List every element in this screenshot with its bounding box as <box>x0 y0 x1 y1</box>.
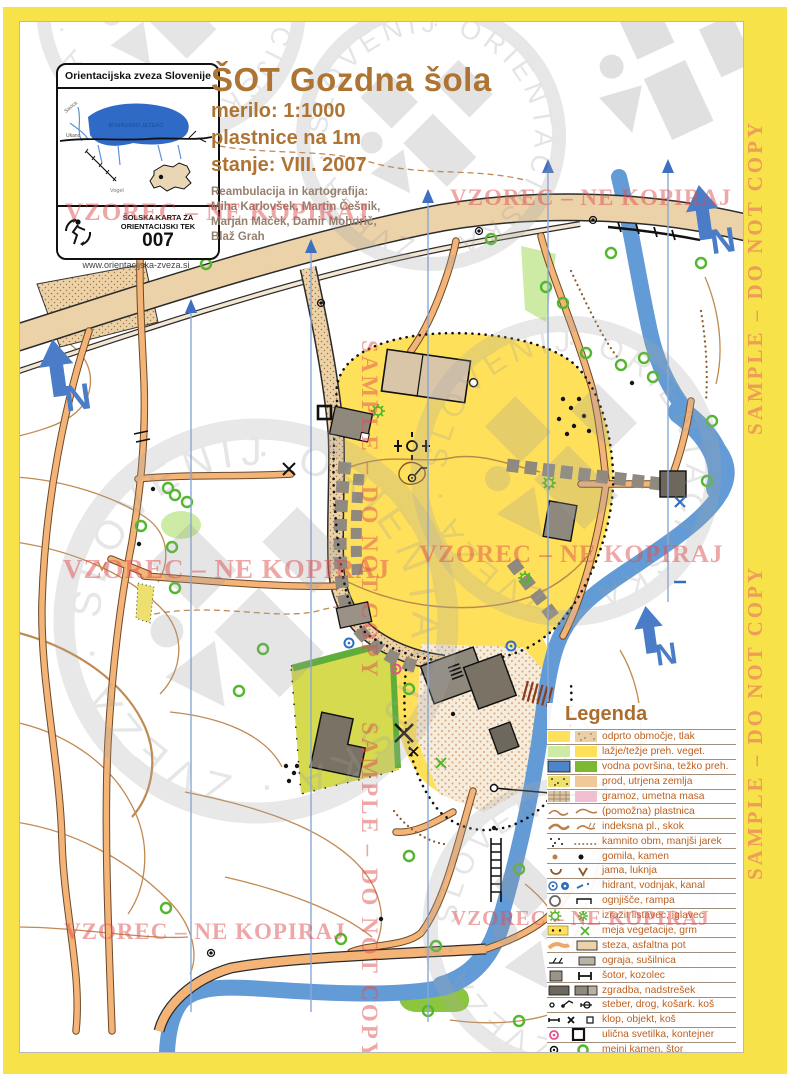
legend-item: šotor, kozolec <box>547 968 736 983</box>
sand-patch <box>136 583 154 623</box>
legend-heading: Legenda <box>565 703 736 726</box>
credits-line: Blaž Grah <box>211 230 492 245</box>
legend-symbol <box>547 745 602 758</box>
website-url: www.orientacijska-zveza.si <box>56 260 216 270</box>
legend-item: kamnito obm, manjši jarek <box>547 834 736 849</box>
legend-symbol <box>547 760 602 773</box>
legend-item: jama, luknja <box>547 864 736 879</box>
map-title: ŠOT Gozdna šola <box>211 62 492 98</box>
logo-footer: ŠOLSKA KARTA ZA ORIENTACIJSKI TEK 007 <box>58 205 218 256</box>
legend-symbol <box>547 1013 602 1026</box>
map-scale: merilo: 1:1000 <box>211 98 492 125</box>
minimap-road <box>188 131 206 142</box>
map-sheet-page: · ORIENTACIJSKA · ZVEZA · SLOVENIJE · OR… <box>0 0 787 1074</box>
ukanc-label: Ukanc <box>66 133 81 139</box>
legend-symbol <box>547 894 602 907</box>
legend-item: ulična svetilka, kontejner <box>547 1028 736 1043</box>
legend-item: mejni kamen, štor <box>547 1043 736 1053</box>
legend-item: steber, drog, košark. koš <box>547 998 736 1013</box>
legend-item: gomila, kamen <box>547 849 736 864</box>
legend-symbol <box>547 984 602 997</box>
legend-symbol <box>547 939 602 952</box>
legend-symbol <box>547 879 602 892</box>
runner-logo-icon <box>58 215 98 249</box>
legend-symbol <box>547 790 602 803</box>
legend-symbol <box>547 730 602 743</box>
legend-item: zgradba, nadstrešek <box>547 983 736 998</box>
legend-item: indeksna pl., skok <box>547 819 736 834</box>
legend-symbol <box>547 820 602 833</box>
map-sheet: · ORIENTACIJSKA · ZVEZA · SLOVENIJE · OR… <box>19 21 744 1053</box>
credits-heading: Reambulacija in kartografija: <box>211 185 492 200</box>
legend: Legenda odprto območje, tlak lažje/težje… <box>547 703 736 1053</box>
legend-item: (pomožna) plastnica <box>547 804 736 819</box>
legend-symbol <box>547 1028 602 1041</box>
legend-item: prod, utrjena zemlja <box>547 775 736 790</box>
club-name: Orientacijska zveza Slovenije <box>58 65 218 89</box>
school-card-line1: ŠOLSKA KARTA ZA <box>98 213 218 222</box>
credits-line: Miha Karlovšek, Martin Češnik, <box>211 200 492 215</box>
legend-symbol <box>547 864 602 877</box>
legend-item: gramoz, umetna masa <box>547 790 736 805</box>
legend-symbol <box>547 909 602 922</box>
slovenia-outline <box>150 163 191 191</box>
legend-symbol <box>547 924 602 937</box>
legend-item: ograja, sušilnica <box>547 953 736 968</box>
legend-symbol <box>547 1043 602 1053</box>
legend-item: izrazit listavec, iglavec <box>547 909 736 924</box>
map-state: stanje: VIII. 2007 <box>211 152 492 179</box>
legend-item: ognjišče, rampa <box>547 894 736 909</box>
credits: Reambulacija in kartografija: Miha Karlo… <box>211 185 492 245</box>
map-number: 007 <box>98 231 218 251</box>
legend-symbol <box>547 969 602 982</box>
legend-symbol <box>547 775 602 788</box>
legend-item: hidrant, vodnjak, kanal <box>547 879 736 894</box>
legend-item: odprto območje, tlak <box>547 730 736 745</box>
legend-symbol <box>547 805 602 818</box>
savica-label: Savica <box>63 100 79 114</box>
club-logo-box: Orientacijska zveza Slovenije BOHINJSKO … <box>56 63 220 260</box>
legend-item: klop, objekt, koš <box>547 1013 736 1028</box>
legend-symbol <box>547 835 602 848</box>
lake-label: BOHINJSKO JEZERO <box>108 123 164 129</box>
legend-item: steza, asfaltna pot <box>547 938 736 953</box>
legend-symbol <box>547 954 602 967</box>
credits-line: Marjan Maček, Damir Mohorič, <box>211 215 492 230</box>
legend-symbol <box>547 998 602 1011</box>
legend-item: vodna površina, težko preh. <box>547 760 736 775</box>
location-minimap: BOHINJSKO JEZERO Savica Ukanc Vogel <box>58 89 218 205</box>
location-dot <box>159 175 163 179</box>
legend-symbol <box>547 850 602 863</box>
vogel-label: Vogel <box>110 188 124 194</box>
legend-item: meja vegetacije, grm <box>547 924 736 939</box>
legend-item: lažje/težje preh. veget. <box>547 745 736 760</box>
map-contour-interval: plastnice na 1m <box>211 125 492 152</box>
title-block: ŠOT Gozdna šola merilo: 1:1000 plastnice… <box>211 62 492 245</box>
